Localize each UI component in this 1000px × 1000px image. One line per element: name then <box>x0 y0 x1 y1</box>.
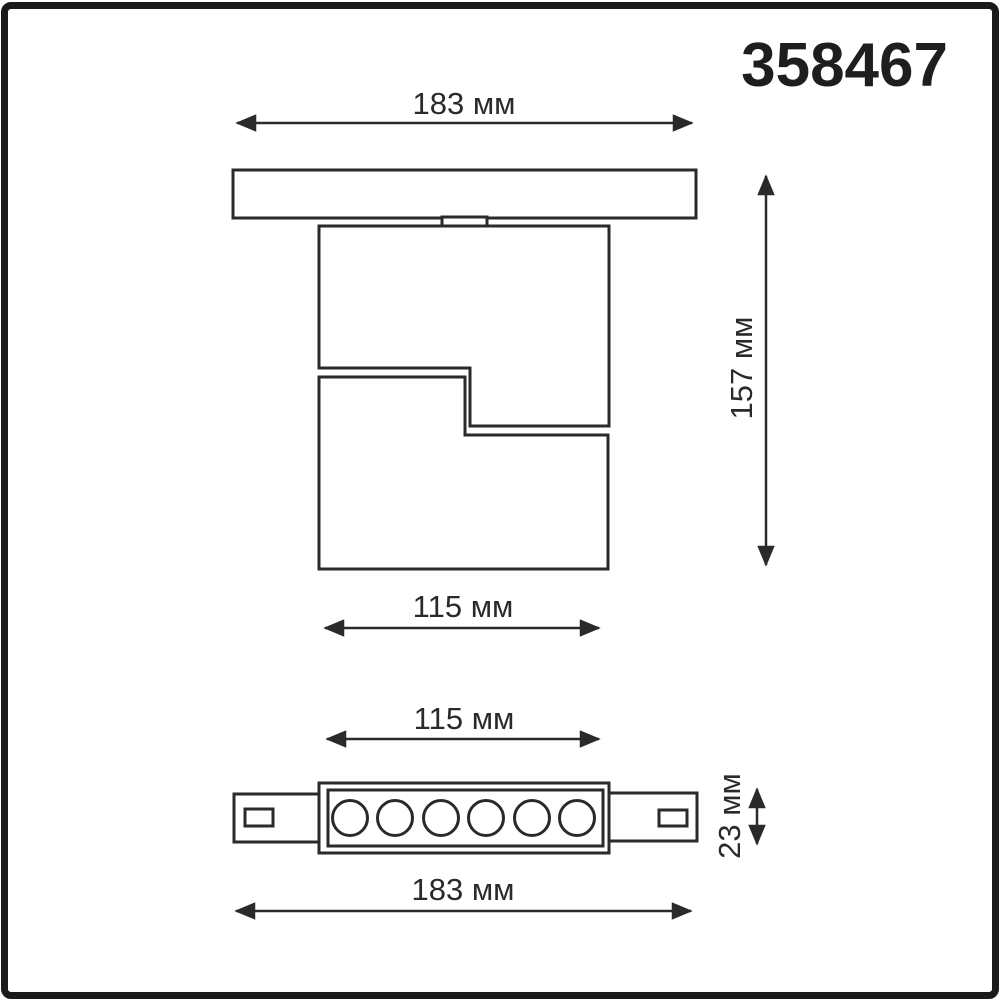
led-circle <box>333 801 368 836</box>
led-circle <box>378 801 413 836</box>
technical-drawing <box>0 0 1000 1000</box>
led-circle <box>515 801 550 836</box>
led-circle <box>469 801 504 836</box>
dim-label-side-head-width: 115 мм <box>413 589 514 625</box>
side-view <box>233 123 766 628</box>
dim-label-bottom-overall-width: 183 мм <box>412 872 515 908</box>
left-adapter-slot <box>245 809 273 826</box>
dim-label-side-overall-height: 157 мм <box>724 317 760 420</box>
led-circle <box>560 801 595 836</box>
led-circle <box>424 801 459 836</box>
track-rail-outline <box>233 170 696 218</box>
dim-label-side-overall-width: 183 мм <box>413 86 516 122</box>
dim-label-bottom-depth: 23 мм <box>712 773 748 859</box>
right-adapter-slot <box>659 810 687 826</box>
dim-label-bottom-head-width: 115 мм <box>414 701 515 737</box>
